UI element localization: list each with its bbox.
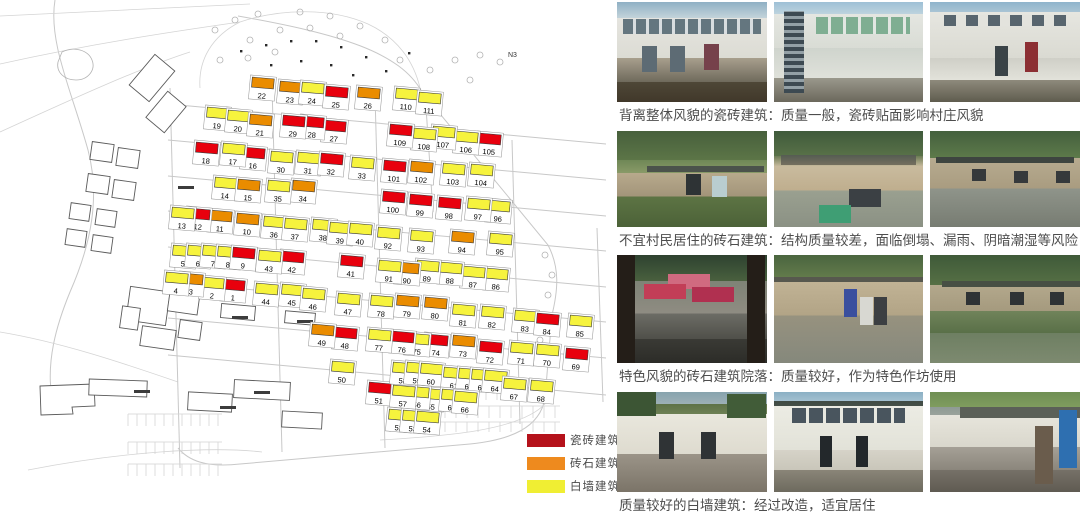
building-outline <box>116 148 140 169</box>
photo-caption-0: 背离整体风貌的瓷砖建筑：质量一般，瓷砖贴面影响村庄风貌 <box>617 102 1080 131</box>
building-67: 67 <box>500 376 528 403</box>
photo-courtyard-1 <box>617 255 767 363</box>
building-number: 49 <box>317 338 326 348</box>
building-37: 37 <box>281 216 309 243</box>
parking-stalls <box>128 414 222 426</box>
building-number: 108 <box>417 142 430 152</box>
tree-icon <box>427 67 433 73</box>
building-block <box>510 342 533 354</box>
building-outline <box>69 203 91 222</box>
building-15: 15 <box>234 177 262 204</box>
building-69: 69 <box>562 346 590 373</box>
building-66: 66 <box>451 389 479 416</box>
building-block <box>320 153 343 165</box>
building-43: 43 <box>255 248 283 275</box>
building-108: 108 <box>410 126 438 153</box>
tree-dot-icon <box>340 46 342 48</box>
building-number: 57 <box>398 399 407 409</box>
building-outline <box>91 235 113 254</box>
tree-dot-icon <box>315 40 317 42</box>
building-block <box>377 227 400 239</box>
building-block <box>382 191 405 203</box>
building-number: 104 <box>474 178 487 188</box>
building-number: 19 <box>212 121 221 131</box>
building-outline <box>120 306 141 330</box>
map-area-label: N3 <box>508 52 517 59</box>
building-95: 95 <box>486 231 514 258</box>
tree-dot-icon <box>270 64 272 66</box>
building-number: 84 <box>542 327 551 337</box>
building-number: 66 <box>460 405 469 415</box>
building-77: 77 <box>365 327 393 354</box>
photo-stone-house-2 <box>774 131 924 227</box>
building-number: 42 <box>287 265 296 275</box>
building-block <box>267 180 290 192</box>
photo-strip <box>617 131 1080 227</box>
building-4: 4 <box>162 270 190 297</box>
tree-icon <box>272 49 278 55</box>
building-number: 79 <box>402 309 411 319</box>
building-number: 32 <box>326 167 335 177</box>
photo-white-house-2 <box>774 392 924 492</box>
building-number: 76 <box>397 345 406 355</box>
building-block <box>368 382 391 394</box>
building-98: 98 <box>435 195 463 222</box>
building-block <box>281 251 304 263</box>
building-44: 44 <box>252 281 280 308</box>
building-number: 82 <box>487 320 496 330</box>
building-block <box>227 110 250 122</box>
building-outline <box>234 380 291 401</box>
building-number: 45 <box>287 298 296 308</box>
building-block <box>481 306 504 318</box>
building-number: 100 <box>386 205 399 215</box>
building-number: 80 <box>430 311 439 321</box>
photo-tile-house-2 <box>774 2 924 102</box>
building-block <box>514 310 537 322</box>
legend-item-0: 瓷砖建筑 <box>527 432 620 448</box>
building-91: 91 <box>375 258 403 285</box>
building-number: 15 <box>243 193 252 203</box>
photo-row-2: 特色风貌的砖石建筑院落：质量较好，作为特色作坊使用 <box>617 255 1080 392</box>
building-number: 105 <box>482 147 495 157</box>
building-block <box>357 87 380 99</box>
building-block <box>232 247 255 259</box>
building-block <box>410 161 433 173</box>
building-number: 111 <box>423 106 435 116</box>
building-block <box>370 295 393 307</box>
building-13: 13 <box>168 205 196 232</box>
building-block <box>462 266 485 278</box>
building-number: 33 <box>357 171 366 181</box>
tree-icon <box>497 59 503 65</box>
building-block <box>284 218 307 230</box>
village-building-quality-map: 1234567891011121314151617181920212223242… <box>0 0 617 519</box>
building-number: 110 <box>399 102 412 112</box>
building-9: 9 <box>229 245 257 272</box>
tree-dot-icon <box>408 52 410 54</box>
building-number: 71 <box>516 356 525 366</box>
building-number: 26 <box>363 101 372 111</box>
building-number: 67 <box>509 392 518 402</box>
building-80: 80 <box>421 295 449 322</box>
building-101: 101 <box>380 158 408 185</box>
building-number: 95 <box>495 247 504 257</box>
building-block <box>439 262 462 274</box>
tree-dot-icon <box>385 70 387 72</box>
tree-icon <box>357 23 363 29</box>
building-block <box>237 179 260 191</box>
building-block <box>413 128 436 140</box>
building-block <box>368 329 391 341</box>
building-number: 44 <box>261 297 270 307</box>
building-number: 97 <box>473 212 482 222</box>
building-block <box>334 327 357 339</box>
tree-icon <box>477 52 483 58</box>
building-number: 38 <box>318 233 327 243</box>
tree-icon <box>255 11 261 17</box>
legend-swatch <box>527 457 565 470</box>
building-47: 47 <box>334 291 362 318</box>
building-block <box>311 324 334 336</box>
building-number: 37 <box>290 232 299 242</box>
building-number: 94 <box>457 245 466 255</box>
building-block <box>452 304 475 316</box>
building-number: 98 <box>444 211 453 221</box>
building-40: 40 <box>346 221 374 248</box>
photo-stone-house-1 <box>617 131 767 227</box>
building-number: 54 <box>422 425 431 435</box>
photo-courtyard-2 <box>774 255 924 363</box>
building-number: 31 <box>303 166 312 176</box>
building-block <box>389 124 412 136</box>
legend-label: 砖石建筑 <box>570 455 620 471</box>
building-71: 71 <box>507 340 535 367</box>
building-30: 30 <box>267 149 295 176</box>
building-104: 104 <box>467 162 495 189</box>
building-outline <box>282 411 323 429</box>
building-block <box>349 223 372 235</box>
tiny-label-mark <box>134 390 150 393</box>
building-block <box>530 380 553 392</box>
building-73: 73 <box>449 333 477 360</box>
building-block <box>255 283 278 295</box>
building-number: 99 <box>415 208 424 218</box>
building-block <box>569 315 592 327</box>
legend-swatch <box>527 434 565 447</box>
building-block <box>171 207 194 219</box>
building-number: 28 <box>307 130 316 140</box>
tree-dot-icon <box>300 60 302 62</box>
tree-icon <box>545 292 551 298</box>
building-99: 99 <box>406 192 434 219</box>
tree-dot-icon <box>290 40 292 42</box>
building-number: 13 <box>177 221 186 231</box>
building-number: 109 <box>393 138 406 148</box>
planning-figure: 1234567891011121314151617181920212223242… <box>0 0 1080 519</box>
building-number: 50 <box>337 375 346 385</box>
building-number: 14 <box>220 191 229 201</box>
building-outline <box>65 229 87 248</box>
building-block <box>438 197 461 209</box>
building-number: 16 <box>248 161 257 171</box>
photo-courtyard-3 <box>930 255 1080 363</box>
building-26: 26 <box>354 85 382 112</box>
photo-row-1: 不宜村民居住的砖石建筑：结构质量较差，面临倒塌、漏雨、阴暗潮湿等风险 <box>617 131 1080 256</box>
building-number: 89 <box>422 274 431 284</box>
photo-caption-2: 特色风貌的砖石建筑院落：质量较好，作为特色作坊使用 <box>617 363 1080 392</box>
building-block <box>454 391 477 403</box>
building-number: 29 <box>288 129 297 139</box>
building-111: 111 <box>415 90 443 117</box>
building-number: 46 <box>308 302 317 312</box>
building-outline <box>89 379 148 397</box>
building-number: 72 <box>485 355 494 365</box>
building-84: 84 <box>533 311 561 338</box>
building-number: 9 <box>240 261 245 270</box>
tiny-label-mark <box>254 391 270 394</box>
building-35: 35 <box>264 178 292 205</box>
building-block <box>301 82 324 94</box>
building-block <box>420 363 443 375</box>
tree-dot-icon <box>352 74 354 76</box>
building-block <box>325 86 348 98</box>
building-78: 78 <box>367 293 395 320</box>
building-block <box>478 133 501 145</box>
tree-icon <box>397 57 403 63</box>
building-49: 49 <box>308 322 336 349</box>
tree-dot-icon <box>240 50 242 52</box>
building-number: 91 <box>384 274 393 284</box>
building-34: 34 <box>289 178 317 205</box>
building-block <box>249 114 272 126</box>
building-block <box>258 250 281 262</box>
building-100: 100 <box>379 189 407 216</box>
tree-icon <box>549 272 555 278</box>
tree-icon <box>247 37 253 43</box>
building-25: 25 <box>322 84 350 111</box>
building-number: 87 <box>468 280 477 290</box>
photo-caption-1: 不宜村民居住的砖石建筑：结构质量较差，面临倒塌、漏雨、阴暗潮湿等风险 <box>617 227 1080 256</box>
building-94: 94 <box>448 229 476 256</box>
building-block <box>323 120 346 132</box>
building-number: 103 <box>446 177 459 187</box>
building-block <box>351 157 374 169</box>
photo-row-3: 质量较好的白墙建筑：经过改造，适宜居住 <box>617 392 1080 519</box>
building-outline <box>90 142 114 163</box>
building-number: 27 <box>329 134 338 144</box>
building-number: 40 <box>355 237 364 247</box>
building-block <box>209 210 232 222</box>
numbered-buildings-layer: 1234567891011121314151617181920212223242… <box>162 75 594 436</box>
building-109: 109 <box>386 122 414 149</box>
building-number: 47 <box>343 307 352 317</box>
map-legend: 瓷砖建筑砖石建筑白墙建筑 <box>527 432 620 494</box>
building-number: 17 <box>228 157 237 167</box>
street-line <box>597 228 603 402</box>
building-number: 70 <box>542 358 551 368</box>
building-outline <box>95 209 117 228</box>
building-70: 70 <box>533 342 561 369</box>
photo-white-house-1 <box>617 392 767 492</box>
photo-caption-3: 质量较好的白墙建筑：经过改造，适宜居住 <box>617 492 1080 519</box>
building-block <box>331 361 354 373</box>
building-92: 92 <box>374 225 402 252</box>
building-54: 54 <box>413 409 441 436</box>
building-32: 32 <box>317 151 345 178</box>
building-outline <box>140 326 176 351</box>
building-85: 85 <box>566 313 594 340</box>
photo-tile-house-1 <box>617 2 767 102</box>
building-93: 93 <box>407 228 435 255</box>
tree-icon <box>307 25 313 31</box>
building-block <box>292 180 315 192</box>
building-block <box>297 152 320 164</box>
building-block <box>270 151 293 163</box>
building-block <box>409 194 432 206</box>
building-number: 35 <box>273 194 282 204</box>
tree-icon <box>217 57 223 63</box>
building-82: 82 <box>478 304 506 331</box>
building-outline <box>178 320 202 341</box>
building-block <box>455 131 478 143</box>
tree-icon <box>337 33 343 39</box>
tiny-label-mark <box>178 186 194 189</box>
building-block <box>236 213 259 225</box>
building-block <box>442 163 465 175</box>
building-number: 11 <box>215 224 224 234</box>
building-79: 79 <box>393 293 421 320</box>
photo-row-0: 背离整体风貌的瓷砖建筑：质量一般，瓷砖贴面影响村庄风貌 <box>617 2 1080 131</box>
building-41: 41 <box>337 253 365 280</box>
building-number: 22 <box>257 91 266 101</box>
building-29: 29 <box>279 113 307 140</box>
building-block <box>337 293 360 305</box>
building-number: 74 <box>431 348 440 358</box>
building-block <box>503 378 526 390</box>
building-number: 30 <box>276 165 285 175</box>
building-block <box>395 88 418 100</box>
building-50: 50 <box>328 359 356 386</box>
building-number: 96 <box>493 214 502 224</box>
building-number: 73 <box>458 349 467 359</box>
building-number: 41 <box>346 269 355 279</box>
tree-icon <box>452 57 458 63</box>
tree-icon <box>542 252 548 258</box>
building-number: 25 <box>331 100 340 110</box>
building-18: 18 <box>192 140 220 167</box>
building-number: 1 <box>230 293 235 302</box>
building-103: 103 <box>439 161 467 188</box>
building-block <box>410 230 433 242</box>
building-block <box>452 335 475 347</box>
building-block <box>485 268 508 280</box>
building-number: 106 <box>459 145 472 155</box>
building-number: 93 <box>416 244 425 254</box>
building-number: 101 <box>387 174 400 184</box>
photo-strip <box>617 392 1080 492</box>
building-number: 86 <box>491 282 500 292</box>
building-block <box>479 341 502 353</box>
building-number: 85 <box>575 329 584 339</box>
tree-dot-icon <box>330 64 332 66</box>
building-block <box>536 344 559 356</box>
building-block <box>451 231 474 243</box>
building-97: 97 <box>464 196 492 223</box>
building-block <box>214 177 237 189</box>
building-number: 78 <box>376 309 385 319</box>
photo-white-house-3 <box>930 392 1080 492</box>
building-number: 69 <box>571 362 580 372</box>
building-number: 36 <box>269 230 278 240</box>
building-block <box>391 331 414 343</box>
building-57: 57 <box>389 383 417 410</box>
building-number: 18 <box>201 156 210 166</box>
building-block <box>222 143 245 155</box>
building-number: 48 <box>340 341 349 351</box>
building-number: 34 <box>298 194 307 204</box>
building-number: 68 <box>536 394 545 404</box>
building-number: 51 <box>374 396 383 406</box>
building-block <box>489 233 512 245</box>
building-number: 21 <box>255 128 264 138</box>
building-21: 21 <box>246 112 274 139</box>
building-block <box>536 313 559 325</box>
building-number: 20 <box>233 124 242 134</box>
building-number: 60 <box>426 377 435 387</box>
legend-item-1: 砖石建筑 <box>527 455 620 471</box>
building-block <box>424 297 447 309</box>
tree-icon <box>212 27 218 33</box>
building-number: 102 <box>414 175 427 185</box>
building-number: 2 <box>209 291 214 300</box>
building-block <box>396 295 419 307</box>
building-22: 22 <box>248 75 276 102</box>
building-number: 23 <box>285 95 294 105</box>
building-33: 33 <box>348 155 376 182</box>
tree-dot-icon <box>365 56 367 58</box>
building-block <box>282 115 305 127</box>
parking-stalls <box>128 442 222 454</box>
building-block <box>416 411 439 423</box>
building-block <box>302 288 325 300</box>
building-17: 17 <box>219 141 247 168</box>
building-number: 24 <box>307 96 316 106</box>
building-10: 10 <box>233 211 261 238</box>
tree-icon <box>382 37 388 43</box>
building-24: 24 <box>298 80 326 107</box>
photo-tile-house-3 <box>930 2 1080 102</box>
building-46: 46 <box>299 286 327 313</box>
building-outline <box>86 174 110 195</box>
legend-label: 白墙建筑 <box>570 478 620 494</box>
tree-dot-icon <box>265 44 267 46</box>
tree-icon <box>232 17 238 23</box>
building-block <box>383 160 406 172</box>
building-number: 77 <box>374 343 383 353</box>
tree-icon <box>327 13 333 19</box>
building-block <box>195 142 218 154</box>
building-72: 72 <box>476 339 504 366</box>
building-number: 4 <box>173 286 178 295</box>
building-block <box>392 385 415 397</box>
building-block <box>565 348 588 360</box>
building-number: 90 <box>402 276 411 286</box>
tree-icon <box>245 55 251 61</box>
building-number: 88 <box>445 276 454 286</box>
building-102: 102 <box>407 159 435 186</box>
tree-icon <box>467 77 473 83</box>
